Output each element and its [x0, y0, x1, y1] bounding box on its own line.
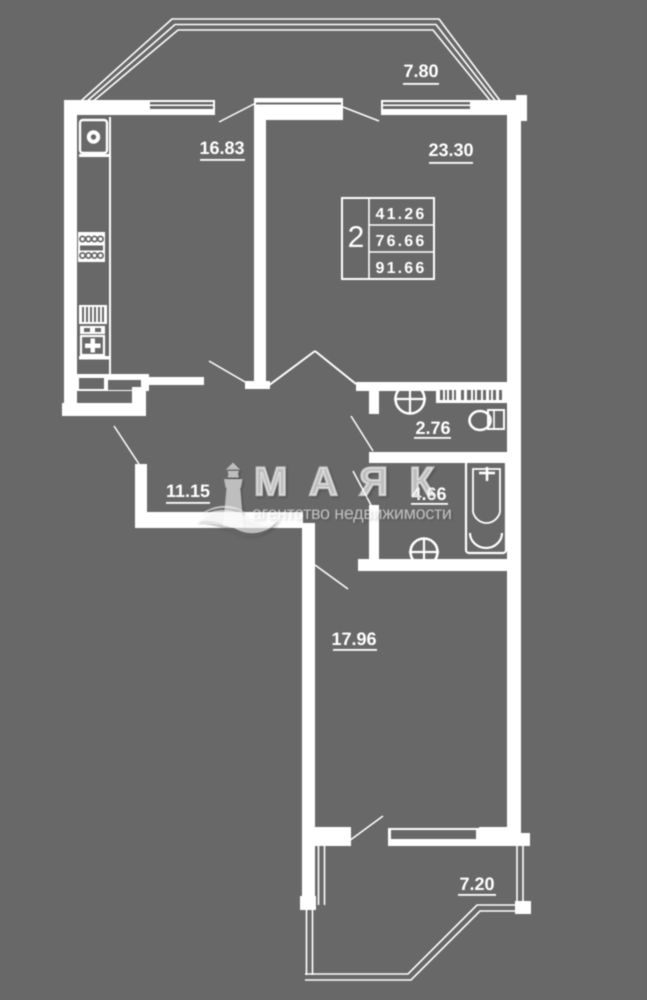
svg-text:7.80: 7.80: [403, 61, 438, 81]
svg-text:41.26: 41.26: [375, 206, 426, 223]
svg-text:17.96: 17.96: [331, 629, 376, 649]
svg-text:11.15: 11.15: [166, 481, 210, 501]
svg-text:агентство недвижимости: агентство недвижимости: [252, 503, 452, 523]
svg-text:76.66: 76.66: [375, 233, 426, 250]
svg-text:16.83: 16.83: [199, 138, 244, 158]
svg-text:91.66: 91.66: [375, 260, 426, 277]
svg-text:7.20: 7.20: [459, 874, 494, 894]
svg-text:МАЯК: МАЯК: [254, 460, 455, 504]
svg-text:2.76: 2.76: [415, 418, 450, 438]
svg-text:23.30: 23.30: [428, 140, 473, 160]
svg-text:2: 2: [348, 221, 365, 254]
